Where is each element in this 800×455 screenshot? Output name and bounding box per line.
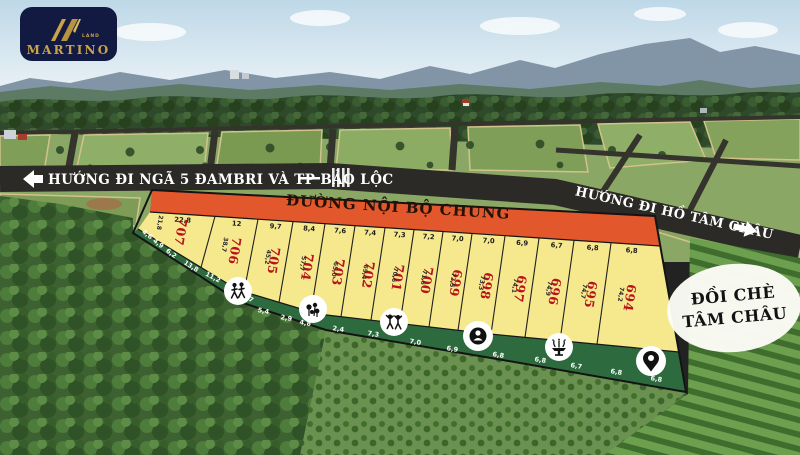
martino-logo: LAND MARTINO: [20, 7, 117, 61]
children-playing-icon: [380, 308, 408, 336]
plot-top-measure: 7,0: [482, 237, 495, 246]
people-walking-icon: [224, 277, 252, 305]
plot-top-measure: 7,0: [451, 234, 464, 243]
logo-brand-text: MARTINO: [27, 43, 111, 57]
plot-top-measure: 7,3: [393, 231, 406, 240]
plot-top-measure: 6,8: [586, 244, 599, 253]
plot-top-measure: 6,7: [550, 241, 563, 250]
road-label-left: HƯỚNG ĐI NGÃ 5 ĐAMBRI VÀ TP BẢO LỘC: [23, 170, 394, 188]
logo-sub-text: LAND: [82, 33, 100, 39]
plot-top-measure: 8,4: [303, 224, 316, 233]
dirt-patch: [86, 198, 122, 210]
scene-svg: 22,870721,81270638,79,770545,28,470457,7…: [0, 0, 800, 455]
plot-top-measure: 9,7: [269, 222, 282, 231]
aerial-land-plot-map: 22,870721,81270638,79,770545,28,470457,7…: [0, 0, 800, 455]
plot-top-measure: 7,4: [364, 229, 377, 238]
plot-top-measure: 7,2: [422, 232, 435, 241]
plot-top-measure: 6,9: [516, 239, 529, 248]
flowers-icon: [299, 295, 327, 323]
plot-top-measure: 12: [232, 220, 242, 229]
plot-top-measure: 7,6: [334, 226, 347, 235]
plot-top-measure: 6,8: [625, 246, 638, 255]
road-label-left-text: HƯỚNG ĐI NGÃ 5 ĐAMBRI VÀ TP BẢO LỘC: [48, 170, 394, 188]
fountain-icon: [545, 333, 573, 361]
statue-icon: [463, 321, 493, 351]
location-pin-icon: [636, 346, 666, 376]
